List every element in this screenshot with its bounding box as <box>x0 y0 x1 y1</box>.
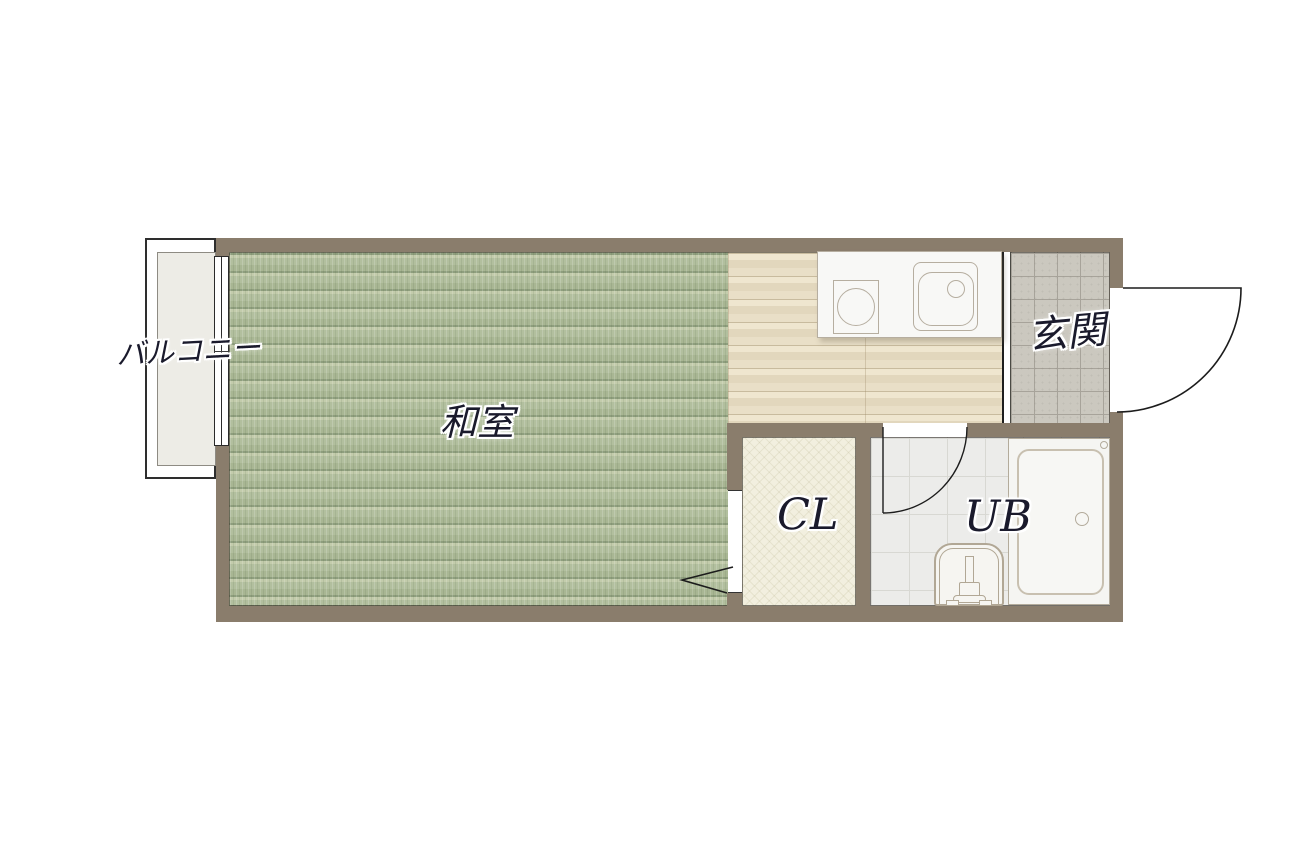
unit-bath-label: UB <box>964 496 1032 539</box>
tatami-room-label: 和室 <box>440 404 514 441</box>
closet-label: CL <box>777 494 838 537</box>
entrance-door-swing <box>1117 288 1241 412</box>
entrance-label: 玄関 <box>1026 311 1107 357</box>
floor-plan: バルコニー 和室 玄関 CL UB <box>0 0 1300 860</box>
balcony-label: バルコニー <box>115 333 261 370</box>
door-swing-overlay <box>0 0 1300 860</box>
closet-door-fold-icon <box>682 567 733 593</box>
bath-door-swing <box>883 427 967 513</box>
